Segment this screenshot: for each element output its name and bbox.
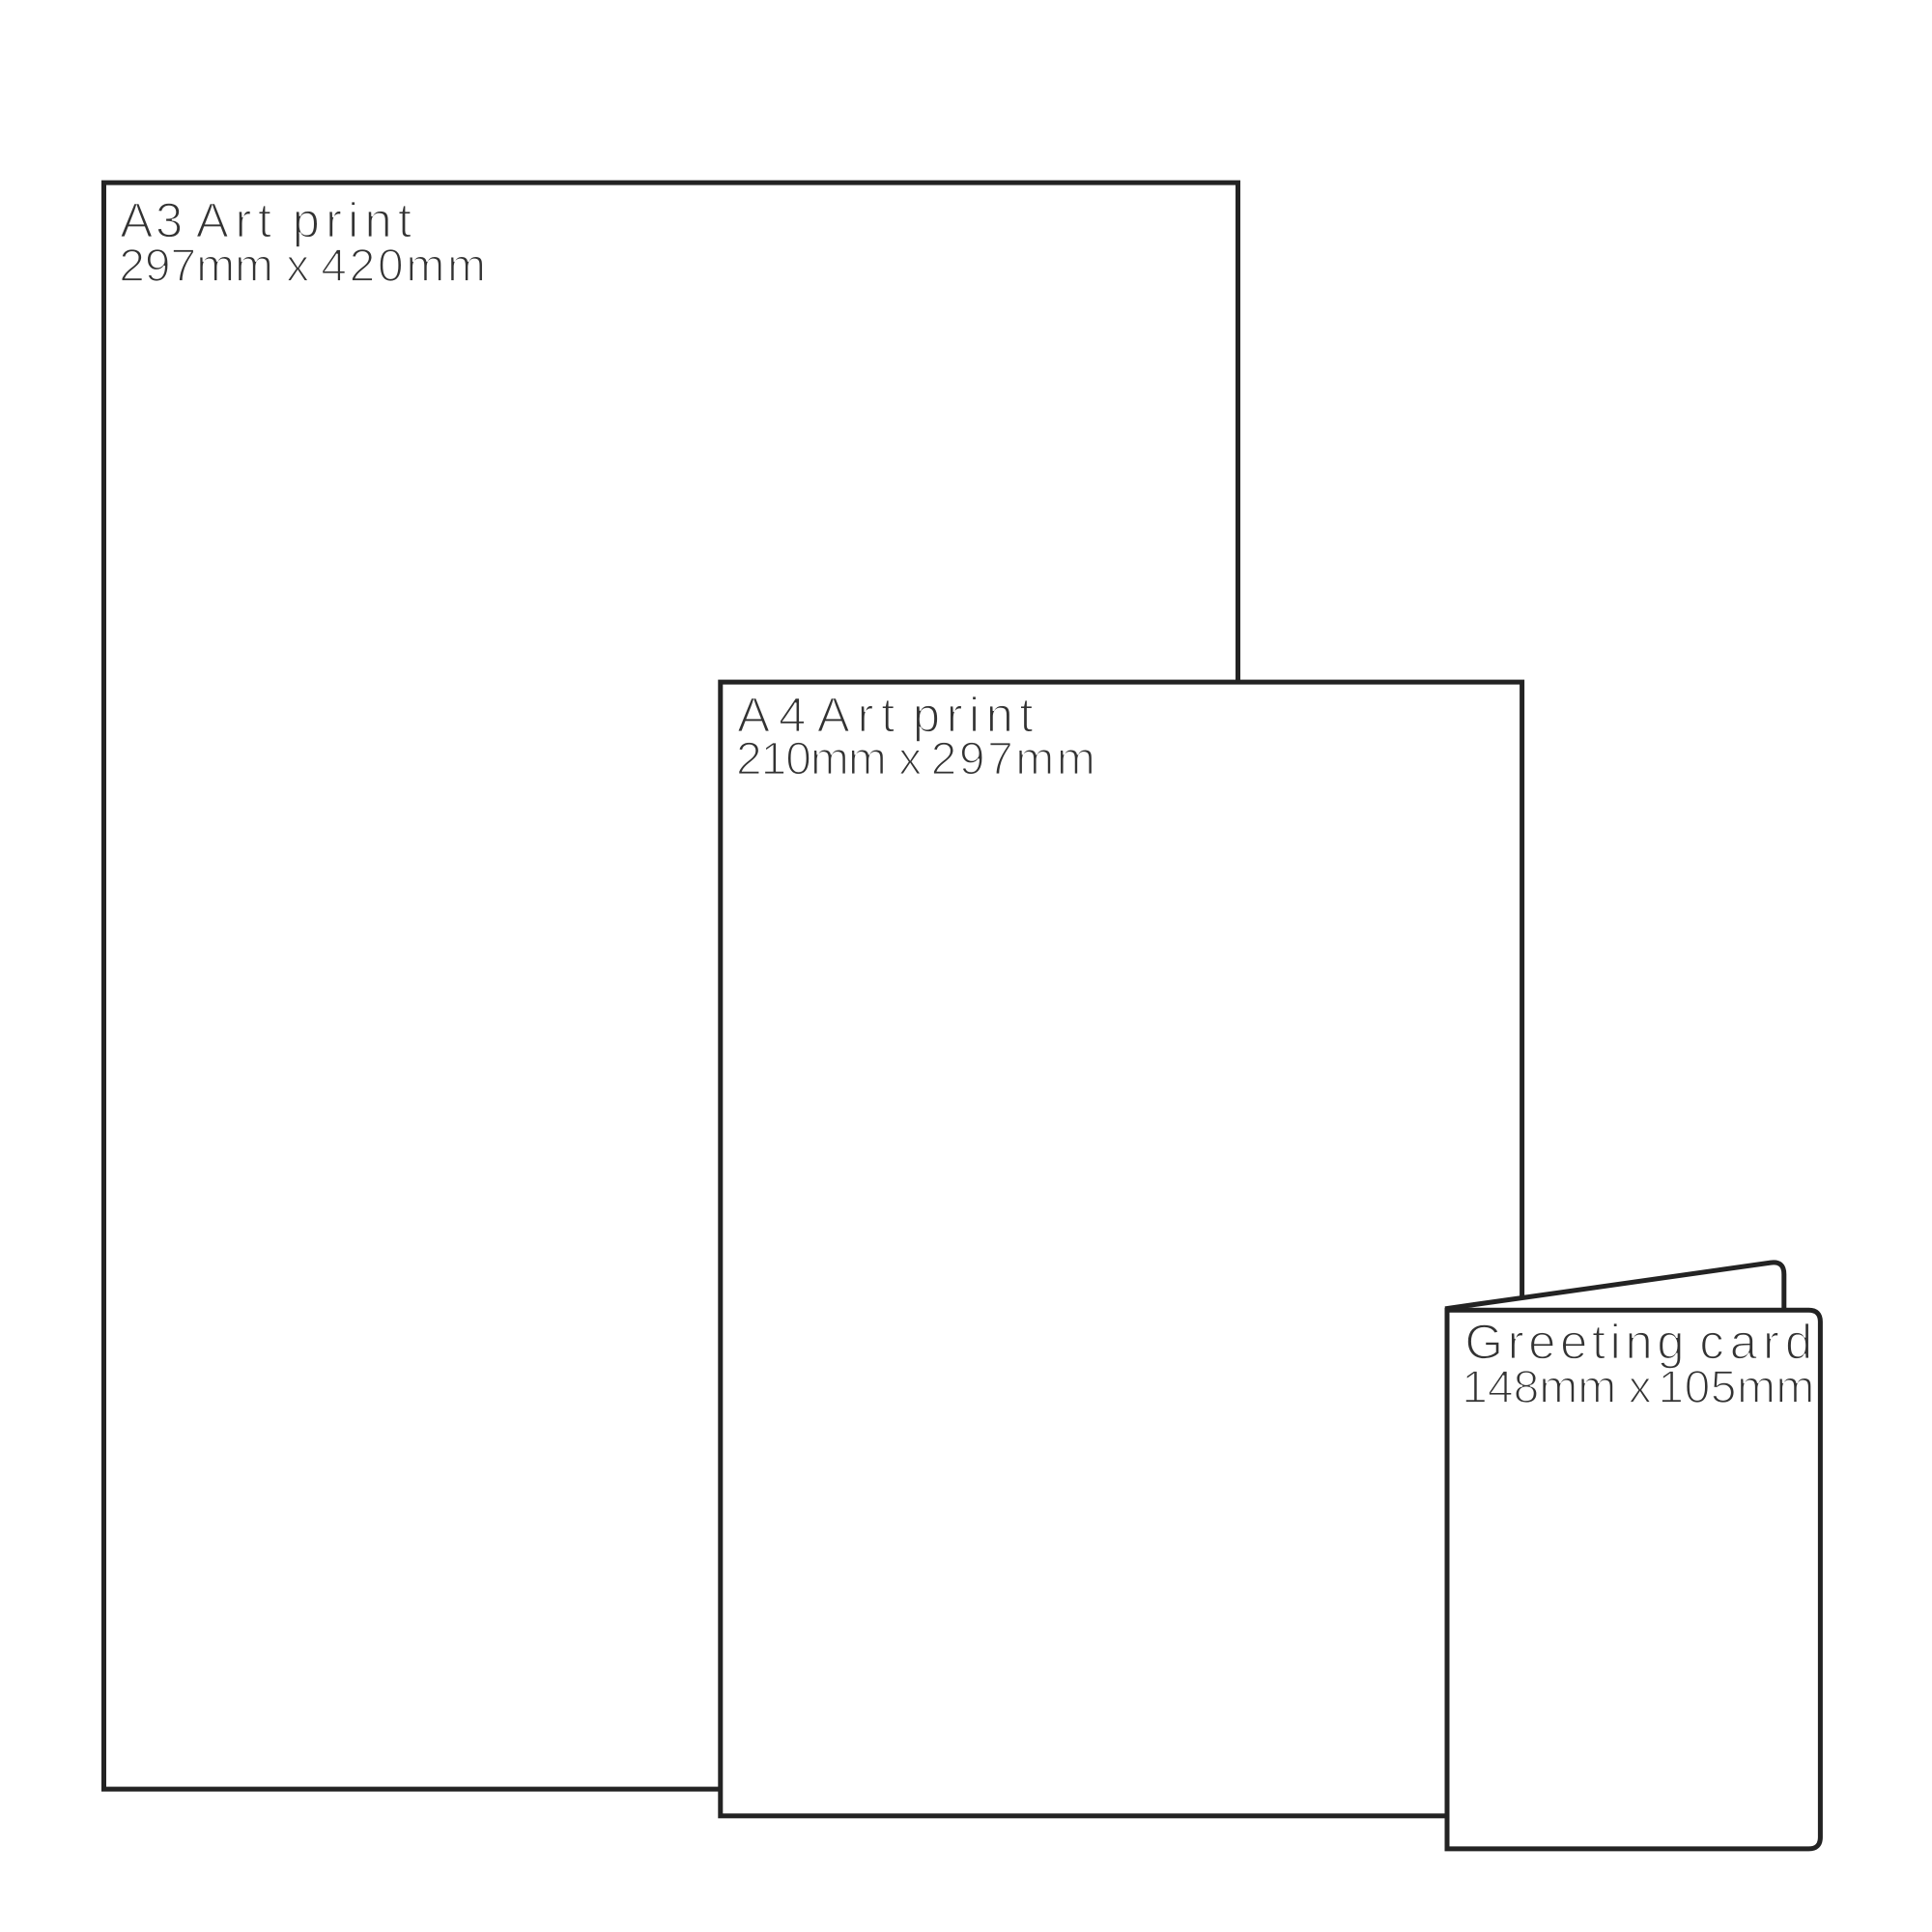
svg-text:105mm: 105mm — [1658, 1362, 1814, 1413]
svg-text:x: x — [1629, 1362, 1652, 1413]
svg-text:A3: A3 — [120, 193, 183, 248]
svg-text:x: x — [898, 734, 922, 785]
svg-text:card: card — [1699, 1315, 1812, 1370]
svg-text:297mm: 297mm — [931, 734, 1095, 785]
svg-text:x: x — [286, 241, 309, 292]
svg-text:297mm: 297mm — [119, 241, 273, 292]
svg-text:210mm: 210mm — [736, 734, 887, 785]
svg-text:420mm: 420mm — [321, 241, 486, 292]
svg-text:148mm: 148mm — [1462, 1362, 1616, 1413]
svg-text:Greeting: Greeting — [1464, 1315, 1684, 1370]
